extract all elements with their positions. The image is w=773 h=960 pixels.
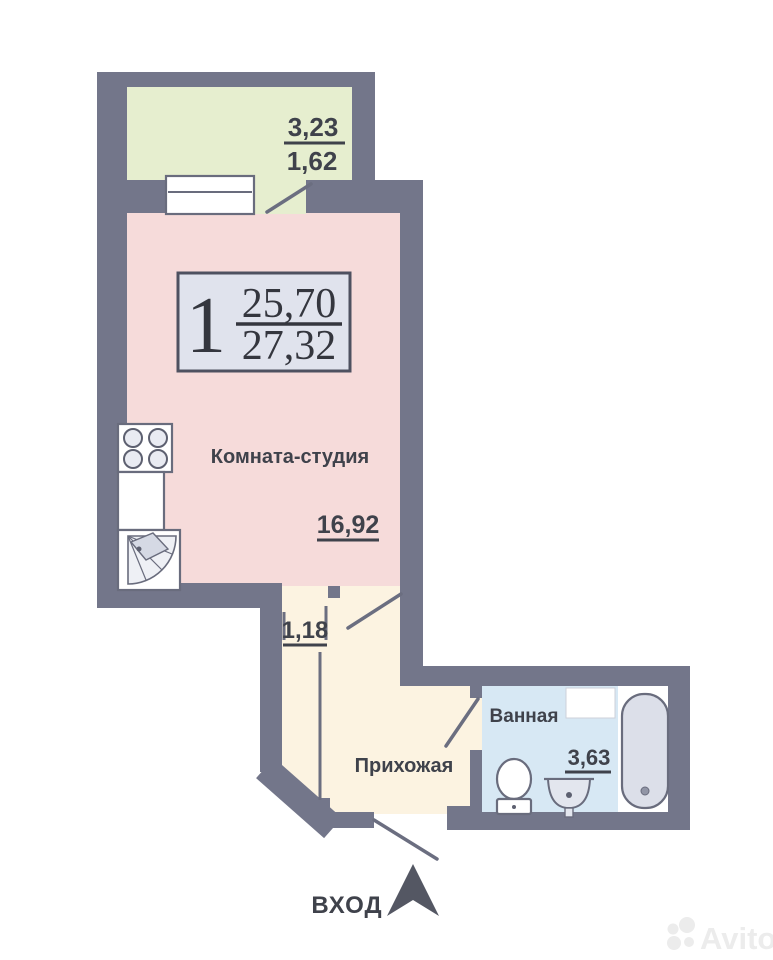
wall-room-top-left	[97, 180, 167, 213]
balcony-area-reduced-label: 1,62	[287, 146, 338, 176]
hallway-name-label: Прихожая	[355, 755, 454, 777]
wall-balcony-right	[352, 72, 375, 184]
wall-bathroom-top	[400, 666, 690, 686]
toilet-bowl	[497, 759, 531, 799]
bathroom-area-label: 3,63	[568, 745, 611, 770]
closet-area-label: 1,18	[282, 617, 329, 644]
wall-hall-left	[260, 600, 282, 772]
balcony-window	[166, 176, 254, 214]
entrance-label: ВХОД	[311, 892, 382, 919]
wall-bath-partition-top	[470, 686, 482, 698]
wall-closet-nub	[313, 798, 330, 812]
unit-badge-total-area: 27,32	[242, 323, 337, 369]
washbasin-drain	[566, 792, 572, 798]
floor-plan: 1 25,70 27,32 3,23 1,62 Комната-студия 1…	[0, 0, 773, 960]
balcony-door-opening	[254, 180, 306, 214]
floor-plan-image: 1 25,70 27,32 3,23 1,62 Комната-студия 1…	[0, 0, 773, 960]
wall-outer-right	[668, 666, 690, 830]
kitchen-counter	[118, 472, 164, 530]
bathtub-drain	[641, 787, 649, 795]
watermark-brand: Avito	[700, 921, 773, 956]
studio-name-label: Комната-студия	[211, 446, 369, 468]
bathroom-name-label: Ванная	[490, 706, 559, 727]
unit-badge-living-area: 25,70	[242, 281, 337, 327]
unit-badge-rooms: 1	[186, 282, 226, 370]
sink-faucet-dot	[137, 547, 142, 552]
unit-badge: 1 25,70 27,32	[178, 273, 350, 371]
bathroom-cabinet	[566, 688, 615, 718]
wall-bottom-left	[327, 812, 374, 828]
wall-top	[97, 72, 375, 87]
toilet-button	[512, 805, 516, 809]
wall-door-post-studio	[328, 586, 340, 598]
balcony-area-label: 3,23	[288, 112, 339, 142]
wall-room-right	[400, 180, 423, 677]
wall-bath-partition-bottom	[470, 750, 482, 812]
studio-area-label: 16,92	[317, 511, 380, 539]
washbasin-pedestal	[565, 808, 573, 817]
